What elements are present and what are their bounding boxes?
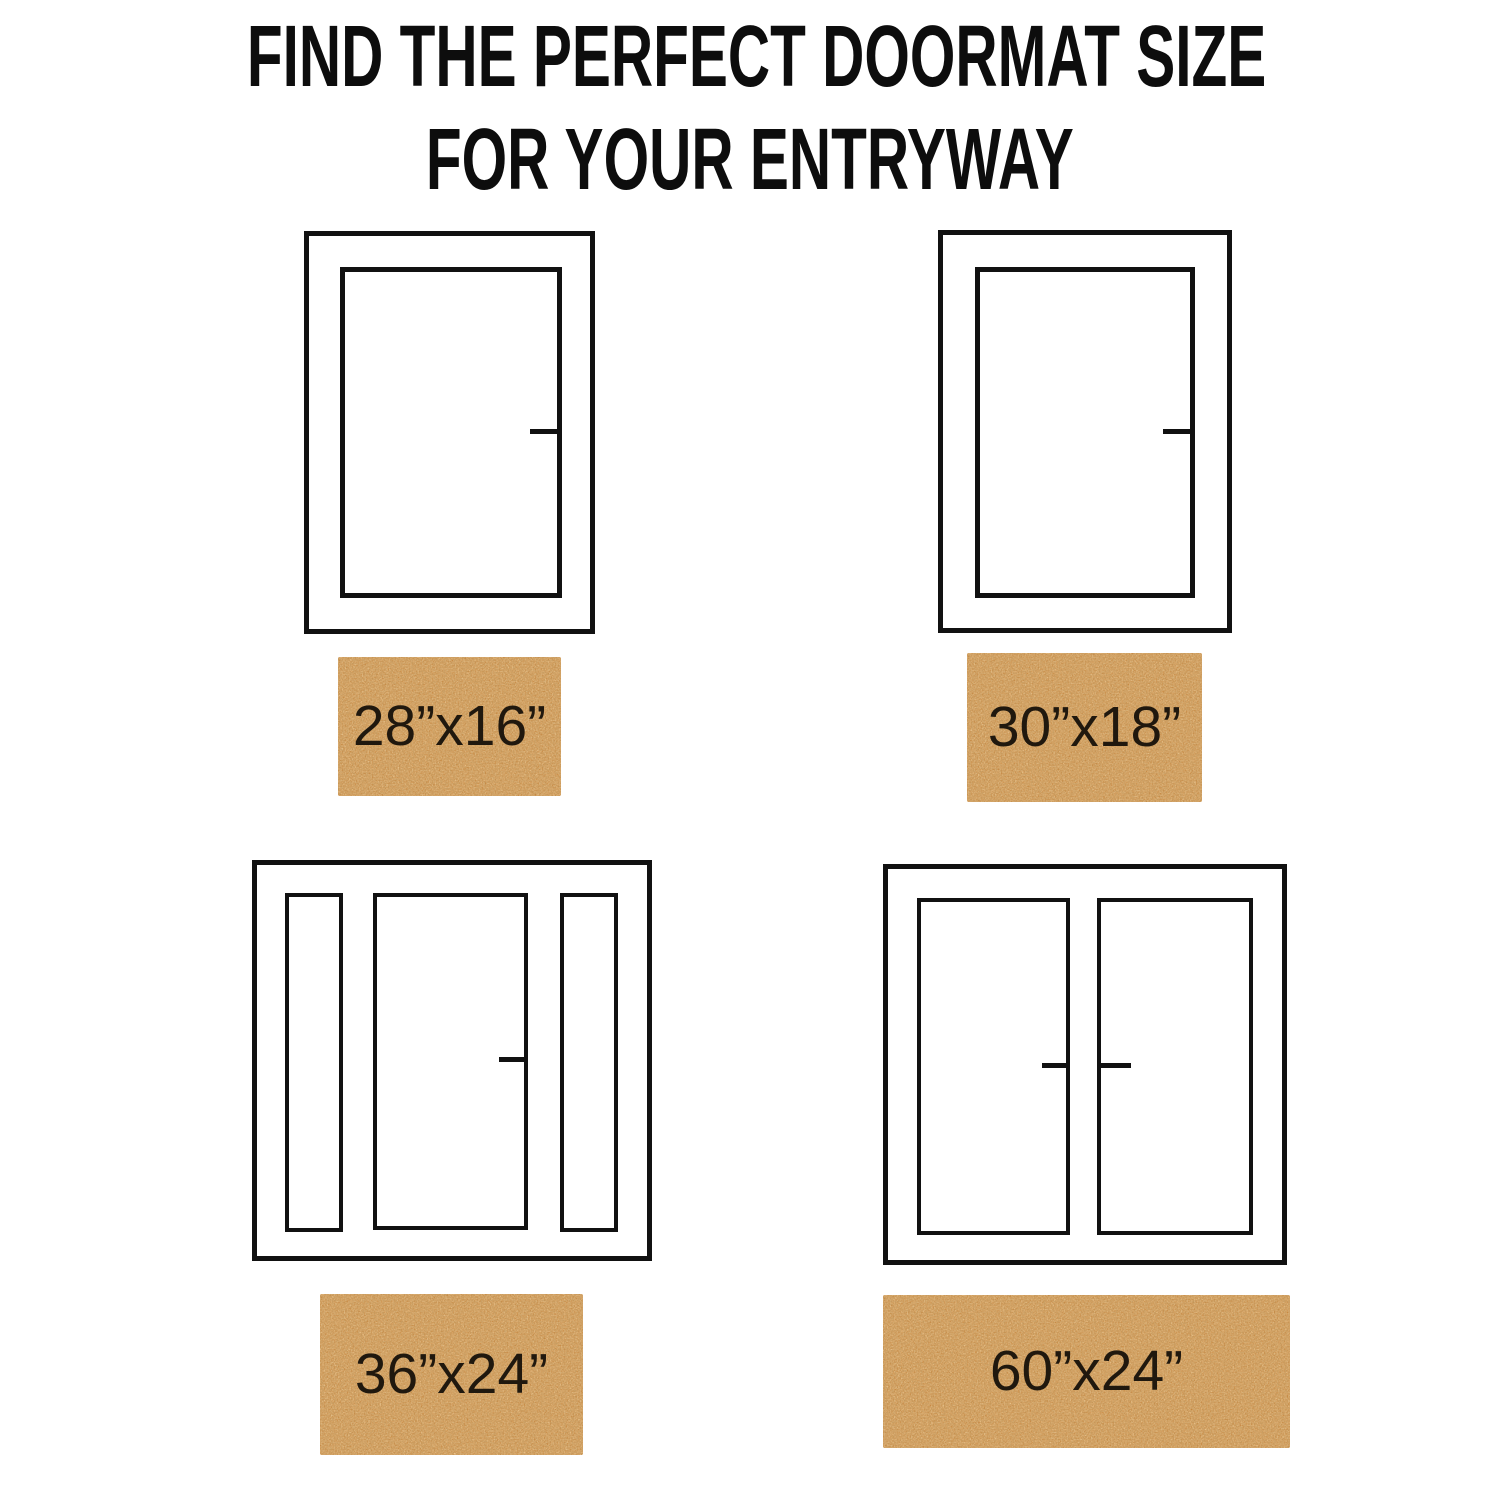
- doormat-36x24: 36”x24”: [320, 1294, 583, 1455]
- door-handle: [1042, 1063, 1066, 1068]
- doormat-30x18: 30”x18”: [967, 653, 1202, 802]
- double-door-bottom-right: [883, 864, 1287, 1265]
- door-panel: [373, 893, 528, 1230]
- doormat-size-label: 30”x18”: [988, 699, 1181, 756]
- single-door-top-right: [938, 230, 1232, 633]
- single-door-top-left: [304, 231, 595, 634]
- door-panel: [975, 267, 1195, 598]
- door-panel-right: [1097, 898, 1253, 1235]
- door-handle: [1101, 1063, 1131, 1068]
- doormat-60x24: 60”x24”: [883, 1295, 1290, 1448]
- door-handle: [499, 1057, 524, 1062]
- doormat-size-label: 28”x16”: [353, 698, 546, 755]
- page-title: FIND THE PERFECT DOORMAT SIZE FOR YOUR E…: [0, 5, 1500, 211]
- door-panel: [340, 267, 562, 598]
- doormat-size-infographic: FIND THE PERFECT DOORMAT SIZE FOR YOUR E…: [0, 0, 1500, 1500]
- title-line-1: FIND THE PERFECT DOORMAT SIZE: [135, 5, 1365, 108]
- title-line-2: FOR YOUR ENTRYWAY: [135, 108, 1365, 211]
- door-sidelight-left: [285, 893, 343, 1232]
- door-handle: [530, 429, 557, 434]
- door-handle: [1163, 429, 1190, 434]
- doormat-size-label: 60”x24”: [990, 1343, 1183, 1400]
- doormat-28x16: 28”x16”: [338, 657, 561, 796]
- doormat-size-label: 36”x24”: [355, 1346, 548, 1403]
- door-with-sidelights-bottom-left: [252, 860, 652, 1261]
- door-sidelight-right: [560, 893, 618, 1232]
- door-panel-left: [917, 898, 1070, 1235]
